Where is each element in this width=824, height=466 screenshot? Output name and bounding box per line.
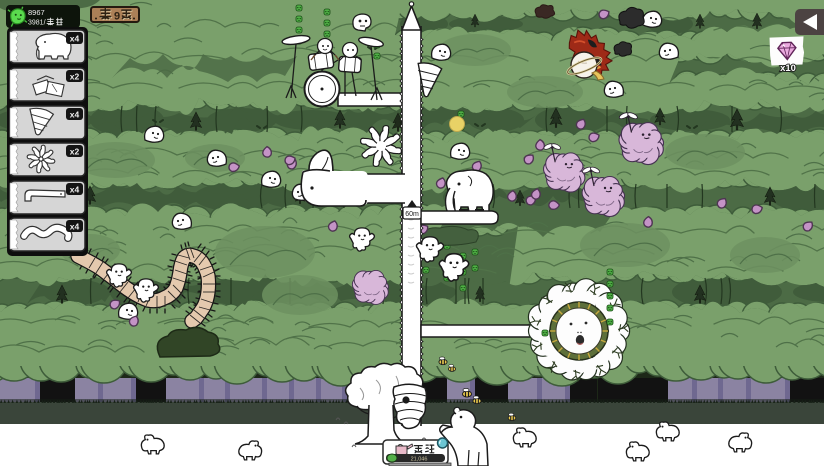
svg-text:x4: x4 xyxy=(70,185,80,195)
svg-text:x10: x10 xyxy=(780,63,796,74)
svg-text:x4: x4 xyxy=(70,222,80,232)
svg-text:x4: x4 xyxy=(70,110,80,120)
svg-text:x2: x2 xyxy=(70,72,80,82)
svg-text:3981/: 3981/ xyxy=(28,20,46,27)
svg-text:8967: 8967 xyxy=(28,8,45,17)
svg-text:9: 9 xyxy=(114,11,120,23)
svg-text:21,046: 21,046 xyxy=(411,457,428,463)
svg-text:x4: x4 xyxy=(70,34,80,44)
svg-text:60m: 60m xyxy=(405,211,419,218)
svg-text:x2: x2 xyxy=(70,147,80,157)
